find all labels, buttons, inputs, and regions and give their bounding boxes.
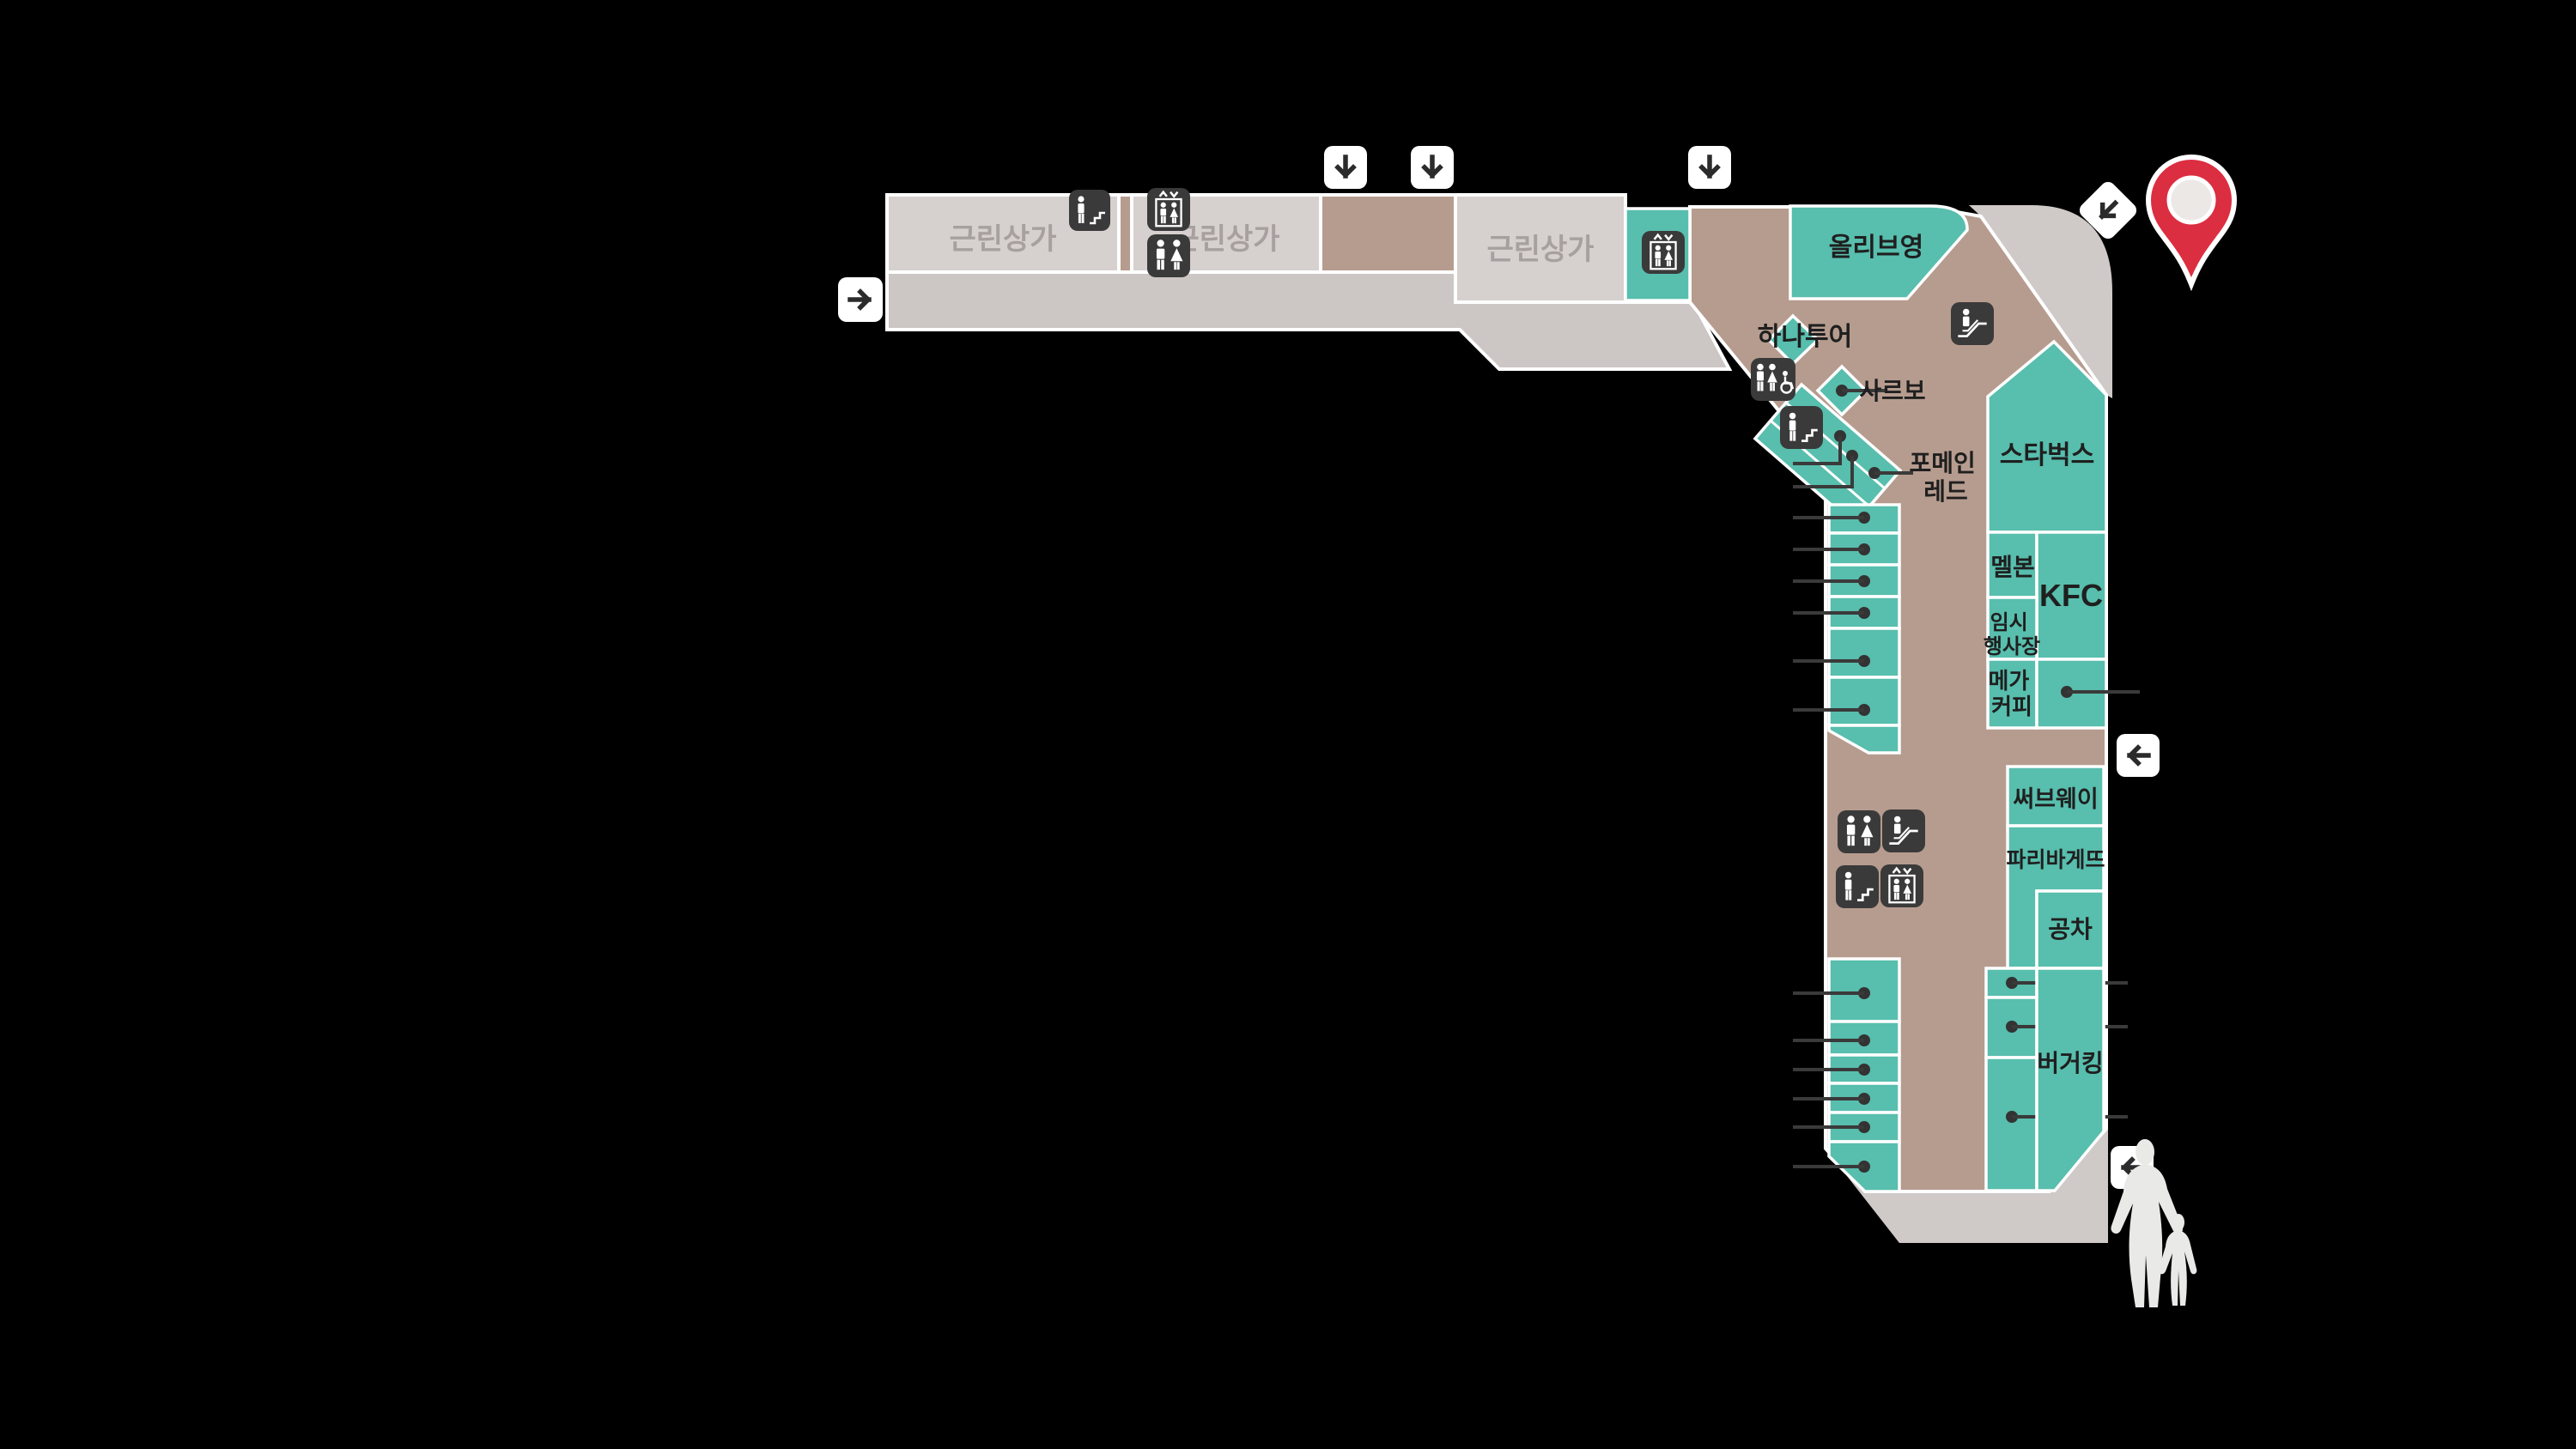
small-shops-bottom-left-column[interactable]: [1986, 968, 2037, 1191]
escalator-icon: [1069, 190, 1110, 231]
down-arrow-icon: [1688, 146, 1731, 189]
service-block-top: [1321, 195, 1455, 272]
store-label-phomein-line1: 포메인: [1909, 450, 1975, 476]
store-label-temp-event-line2: 행사장: [1984, 635, 2040, 658]
store-gong-cha[interactable]: 공차: [2037, 891, 2104, 968]
svg-text:메가 커피: 메가 커피: [1988, 668, 2035, 719]
stairs-icon: [1780, 406, 1823, 449]
store-label-hana-tour: 하나투어: [1758, 323, 1852, 351]
stairs-icon: [1836, 865, 1879, 908]
elevator-icon: [1642, 231, 1685, 274]
store-label-gong-cha: 공차: [2048, 916, 2093, 943]
store-neighborhood-c[interactable]: 근린상가: [1455, 195, 1625, 302]
store-temp-event[interactable]: 임시 행사장: [1984, 597, 2040, 659]
accessible-restroom-icon: [1751, 358, 1795, 401]
store-label-temp-event-line1: 임시: [1990, 611, 2028, 634]
store-label-burger-king: 버거킹: [2037, 1050, 2103, 1076]
restroom-icon: [1838, 810, 1880, 853]
escalator-icon: [1882, 809, 1925, 852]
store-label-olive-young: 올리브영: [1829, 233, 1923, 262]
escalator-icon: [1951, 302, 1994, 345]
store-kfc[interactable]: KFC: [2037, 532, 2106, 659]
store-label-sarbo: 사르보: [1859, 378, 1925, 404]
store-label-mega-line1: 메가: [1988, 668, 2029, 694]
store-label-melbon: 멜본: [1990, 554, 2035, 580]
svg-text:임시 행사장: 임시 행사장: [1984, 611, 2040, 658]
store-label-kfc: KFC: [2039, 578, 2103, 613]
store-subway[interactable]: 써브웨이: [2008, 767, 2104, 826]
store-label-neighborhood-c: 근린상가: [1486, 233, 1594, 266]
mall-floorplan-map: 근린상가 근린상가 근린상가 올리브영 하나투어 사르보: [0, 0, 2576, 1449]
down-arrow-icon: [1411, 146, 1454, 189]
elevator-icon: [1147, 188, 1190, 231]
store-label-mega-line2: 커피: [1991, 694, 2032, 719]
down-arrow-icon: [1324, 146, 1367, 189]
store-mega-coffee[interactable]: 메가 커피: [1988, 659, 2037, 728]
store-label-paris-baguette: 파리바게뜨: [2006, 848, 2105, 872]
elevator-icon: [1880, 864, 1923, 907]
restroom-icon: [1147, 234, 1190, 277]
store-label-neighborhood-a: 근린상가: [949, 223, 1056, 256]
store-label-starbucks: 스타벅스: [2000, 441, 2094, 470]
left-arrow-icon: [2117, 734, 2160, 777]
store-label-phomein-line2: 레드: [1923, 478, 1968, 505]
store-label-subway: 써브웨이: [2013, 786, 2098, 812]
right-arrow-icon: [838, 277, 883, 322]
store-melbon[interactable]: 멜본: [1988, 532, 2037, 597]
